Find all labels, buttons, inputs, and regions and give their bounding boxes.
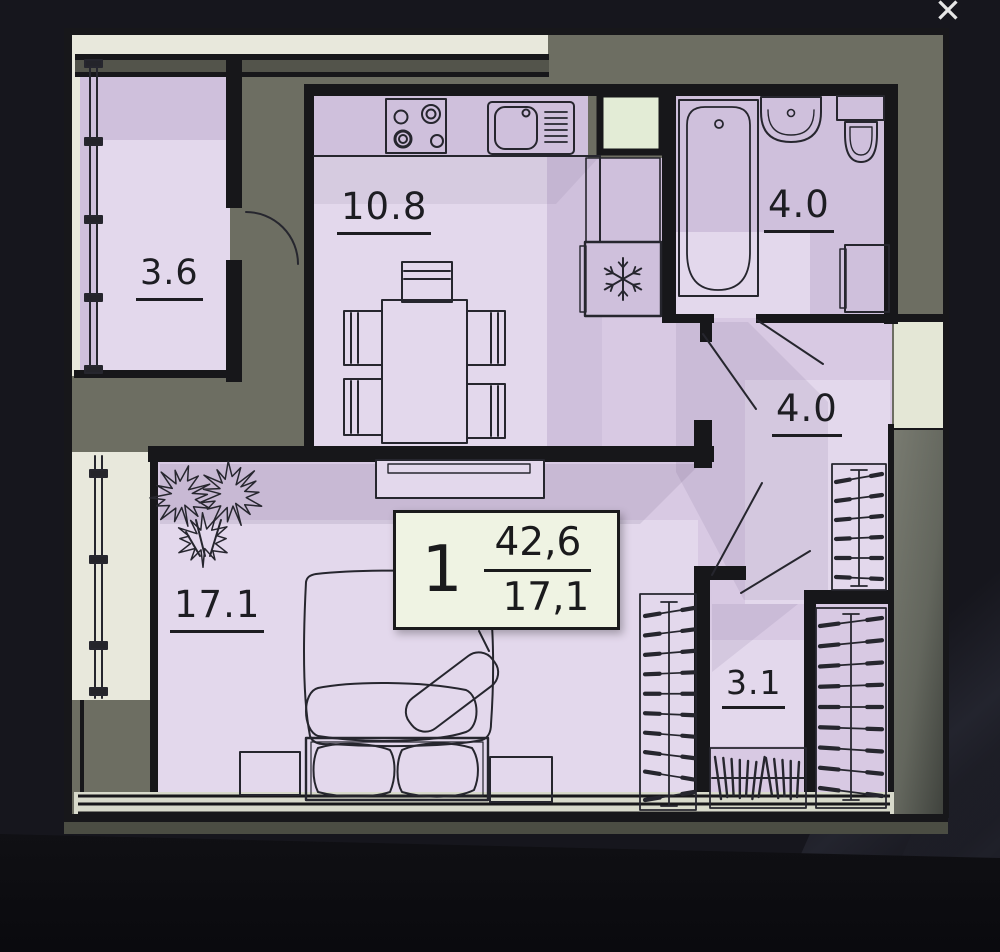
closet-area-label: 3.1 [722, 666, 785, 709]
unit-info-card: 1 42,6 17,1 [393, 510, 620, 630]
close-icon: ✕ [934, 0, 962, 30]
hallway-area-label: 4.0 [772, 390, 842, 437]
rooms-count: 1 [422, 533, 463, 607]
area-fraction: 42,6 17,1 [484, 520, 591, 621]
balcony-area-label: 3.6 [136, 256, 203, 301]
tv-console-icon [376, 460, 544, 498]
floorplan-image [0, 0, 1000, 952]
kitchen-area-label: 10.8 [337, 188, 431, 235]
total-area: 42,6 [484, 520, 591, 569]
photo-viewer: 3.6 10.8 4.0 4.0 17.1 3.1 1 42,6 17,1 ✕ [0, 0, 1000, 952]
close-button[interactable]: ✕ [928, 0, 968, 31]
living-area: 17,1 [484, 572, 591, 620]
living-room-area-label: 17.1 [170, 586, 264, 633]
vent-shaft [600, 94, 662, 152]
bathroom-area-label: 4.0 [764, 186, 834, 233]
